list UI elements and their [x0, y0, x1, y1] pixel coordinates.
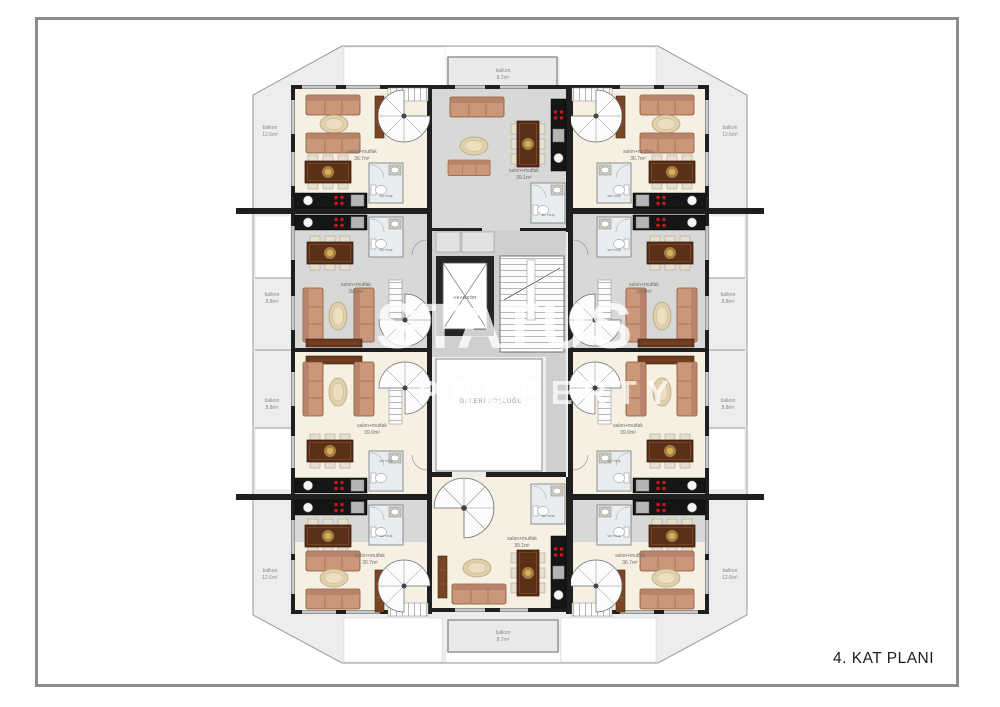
balcony-area: 12.6m² [722, 575, 738, 581]
apartment-top-center [432, 85, 571, 232]
balcony-area: 8.8m² [722, 299, 735, 305]
room-area: 39.0m² [636, 289, 652, 295]
room-label: salon+mutfak [629, 282, 659, 288]
room-area: 39.1m² [514, 543, 530, 549]
room-label: salon+mutfak [623, 149, 653, 155]
room-label: salon+mutfak [347, 149, 377, 155]
balcony-label: balkon [263, 125, 278, 131]
balcony-label: balkon [496, 68, 511, 74]
balcony-label: balkon [721, 398, 736, 404]
wc-label: wc+duş [608, 459, 621, 463]
balcony-area: 8.8m² [722, 405, 735, 411]
wc-label: wc+duş [380, 248, 393, 252]
wc-label: wc+duş [542, 514, 555, 518]
watermark: STATUS PROPERTY [376, 290, 679, 411]
room-area: 36.7m² [354, 156, 370, 162]
room-area: 39.0m² [364, 430, 380, 436]
floor-plan-drawing: salon+mutfak 36.7m² salon+mutfak 39.1m² … [0, 0, 1000, 707]
balcony-area: 12.6m² [262, 132, 278, 138]
balcony-area: 12.6m² [262, 575, 278, 581]
wc-label: wc+duş [542, 213, 555, 217]
balcony-label: balkon [721, 292, 736, 298]
watermark-line1: STATUS [376, 290, 635, 362]
room-label: salon+mutfak [357, 423, 387, 429]
wc-label: wc+duş [608, 248, 621, 252]
room-label: salon+mutfak [509, 168, 539, 174]
room-area: 39.0m² [620, 430, 636, 436]
balcony-area: 8.7m² [497, 75, 510, 81]
balcony-label: balkon [496, 630, 511, 636]
room-label: salon+mutfak [341, 282, 371, 288]
watermark-line2: PROPERTY [417, 374, 679, 411]
wc-label: wc+duş [380, 194, 393, 198]
wc-label: wc+duş [608, 534, 621, 538]
balcony-label: balkon [265, 292, 280, 298]
room-label: salon+mutfak [615, 553, 645, 559]
balcony-area: 8.8m² [266, 405, 279, 411]
balcony-label: balkon [723, 568, 738, 574]
room-area: 36.7m² [630, 156, 646, 162]
balcony-area: 8.7m² [497, 637, 510, 643]
wc-label: wc+duş [380, 534, 393, 538]
balcony-label: balkon [265, 398, 280, 404]
floor-plan-page: salon+mutfak 36.7m² salon+mutfak 39.1m² … [0, 0, 1000, 707]
balcony-label: balkon [723, 125, 738, 131]
room-label: salon+mutfak [507, 536, 537, 542]
balcony-area: 8.8m² [266, 299, 279, 305]
wc-label: wc+duş [608, 194, 621, 198]
room-label: salon+mutfak [355, 553, 385, 559]
room-area: 36.7m² [622, 560, 638, 566]
apartment-bottom-center [432, 477, 571, 614]
room-area: 39.1m² [516, 175, 532, 181]
balcony-area: 12.6m² [722, 132, 738, 138]
balcony-bottom [448, 620, 558, 652]
wc-label: wc+duş [380, 459, 393, 463]
room-area: 39.0m² [348, 289, 364, 295]
balcony-label: balkon [263, 568, 278, 574]
room-area: 36.7m² [362, 560, 378, 566]
page-title: 4. KAT PLANI [833, 650, 934, 667]
room-label: salon+mutfak [613, 423, 643, 429]
